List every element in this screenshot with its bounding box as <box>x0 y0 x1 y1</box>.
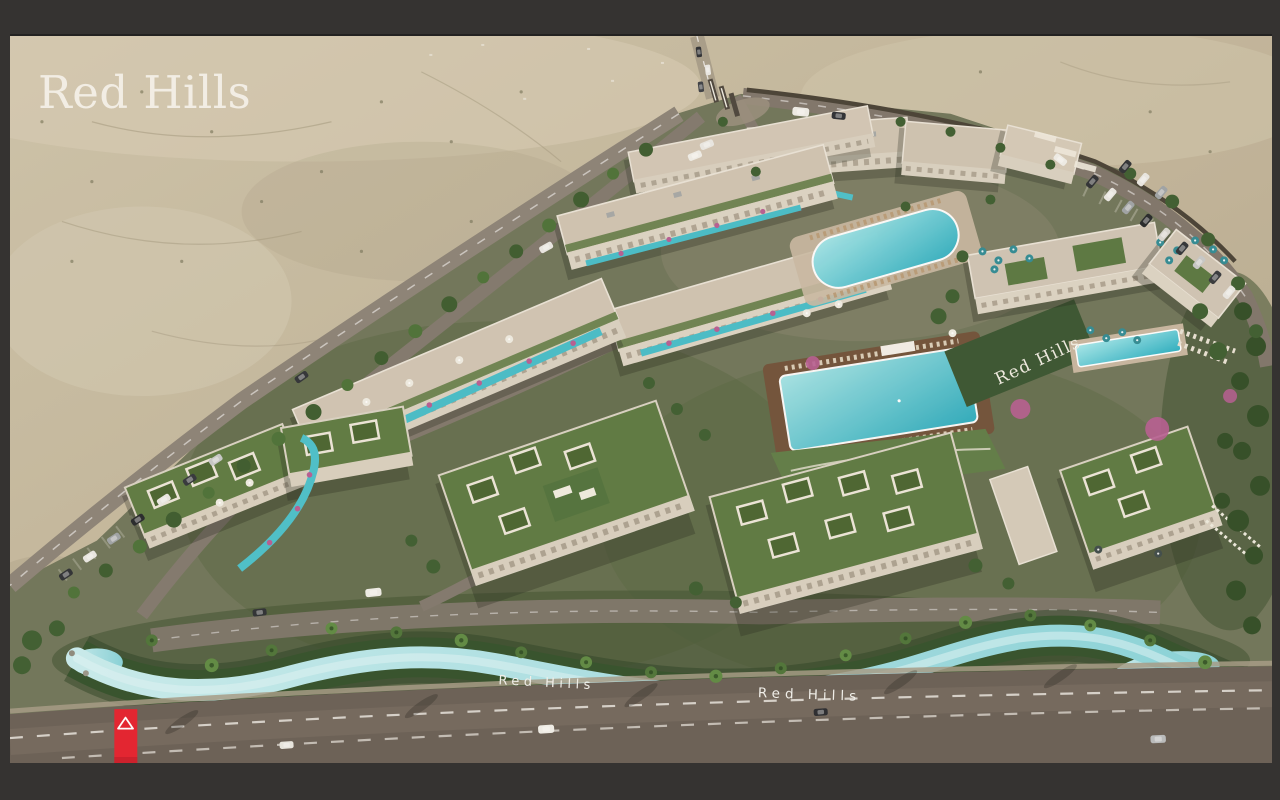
render-scene: Red Hills <box>10 34 1272 763</box>
aerial-render: Red Hills <box>10 36 1272 763</box>
color-grade-overlay <box>10 36 1272 763</box>
